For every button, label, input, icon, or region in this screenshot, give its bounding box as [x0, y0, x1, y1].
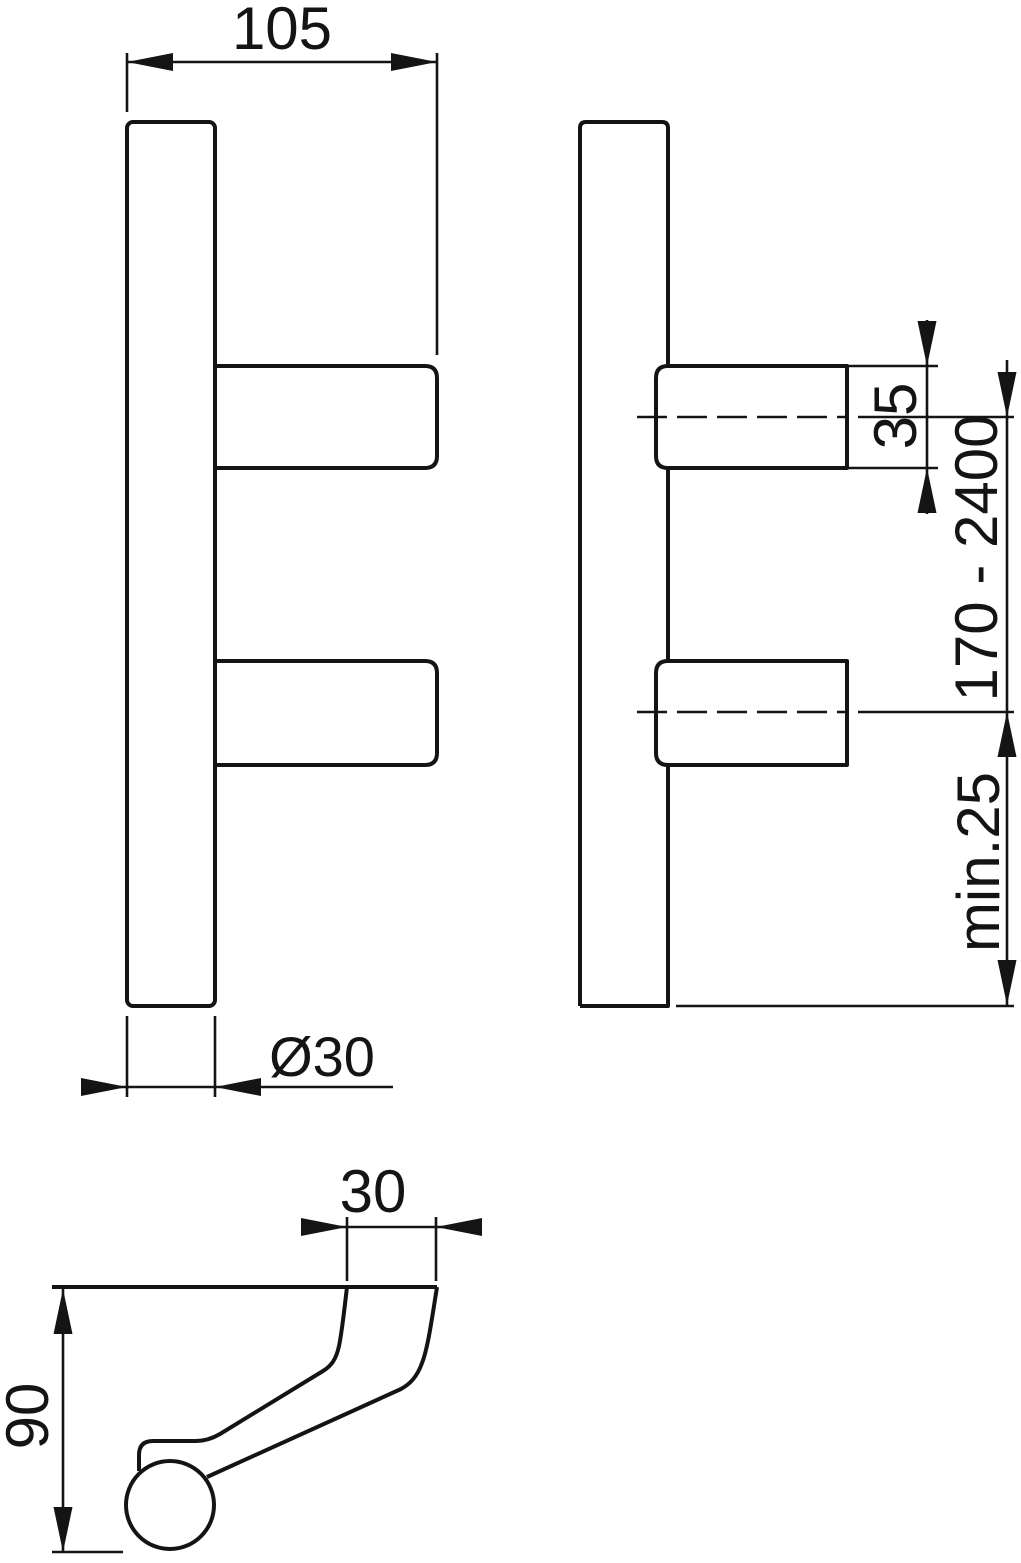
dimension-label-170-2400: 170 - 2400 — [943, 415, 1010, 702]
arrowhead-up-icon — [998, 712, 1017, 757]
bracket-profile-upper-edge — [139, 1287, 347, 1471]
handle-tube-section-circle — [126, 1461, 214, 1549]
dimension-projection: 90 — [0, 1287, 123, 1553]
dimension-fixing-centres: 170 - 2400 — [943, 360, 1017, 712]
arrowhead-down-icon — [998, 372, 1017, 417]
dimension-label-30: 30 — [340, 1158, 407, 1225]
front-handle-tube — [127, 122, 215, 1006]
arrowhead-up-icon — [918, 468, 937, 513]
dimension-label-diameter-30: Ø30 — [269, 1025, 375, 1088]
arrowhead-down-icon — [998, 960, 1017, 1005]
arrowhead-left-icon — [436, 1218, 482, 1236]
dimension-label-105: 105 — [232, 0, 332, 62]
bracket-profile-lower-edge — [207, 1287, 437, 1477]
dimension-label-35: 35 — [862, 383, 929, 450]
dimension-neck-width: 30 — [301, 1158, 482, 1281]
dimension-overall-depth: 105 — [127, 0, 437, 355]
arrowhead-right-icon — [81, 1078, 127, 1096]
pull-handle-drawing: 105 Ø30 — [0, 0, 1021, 1563]
side-handle-tube — [580, 122, 668, 1006]
arrowhead-left-icon — [215, 1078, 261, 1096]
arrowhead-left-icon — [127, 53, 173, 71]
side-view: 35 170 - 2400 min.25 — [580, 122, 1017, 1006]
front-lower-fixing-bracket — [215, 661, 437, 765]
arrowhead-right-icon — [391, 53, 437, 71]
technical-drawing-canvas: 105 Ø30 — [0, 0, 1021, 1563]
profile-view: 30 90 — [0, 1158, 482, 1553]
dimension-label-min25: min.25 — [945, 772, 1012, 952]
arrowhead-up-icon — [54, 1289, 73, 1334]
arrowhead-down-icon — [918, 321, 937, 366]
dimension-label-90: 90 — [0, 1383, 61, 1450]
front-upper-fixing-bracket — [215, 366, 437, 468]
arrowhead-down-icon — [54, 1507, 73, 1552]
front-view: 105 Ø30 — [81, 0, 437, 1097]
dimension-tube-diameter: Ø30 — [81, 1016, 393, 1097]
